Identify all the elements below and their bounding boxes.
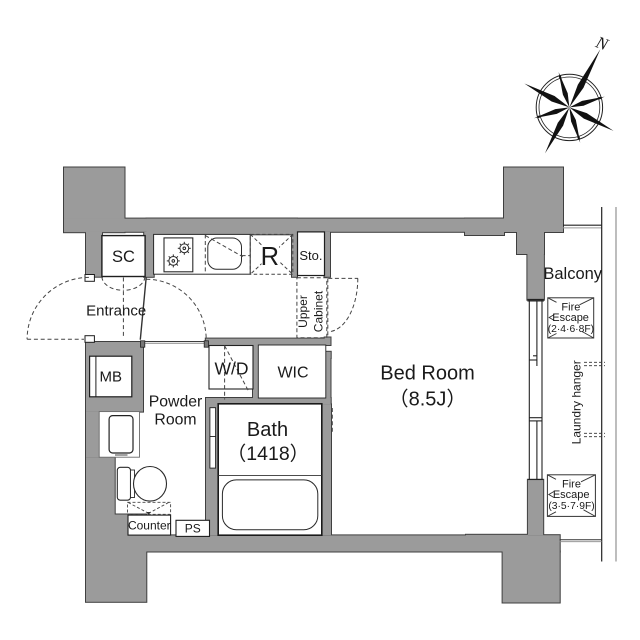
svg-text:Laundry hanger: Laundry hanger [569,360,583,444]
svg-text:Sto.: Sto. [299,248,322,263]
svg-text:W/D: W/D [214,358,248,378]
svg-text:(3·5·7·9F): (3·5·7·9F) [548,501,594,512]
svg-text:SC: SC [112,248,135,266]
svg-text:Cabinet: Cabinet [312,290,326,332]
svg-text:Powder: Powder [149,394,203,411]
svg-text:Room: Room [154,411,196,428]
svg-text:Bed Room: Bed Room [380,363,475,385]
svg-text:Counter: Counter [128,518,171,532]
svg-text:(2·4·6·8F): (2·4·6·8F) [548,324,594,335]
svg-text:PS: PS [185,521,201,535]
svg-text:Escape: Escape [553,489,590,501]
svg-text:Entrance: Entrance [86,302,146,319]
svg-text:R: R [261,243,279,271]
svg-text:WIC: WIC [277,364,308,381]
svg-text:Bath: Bath [247,419,288,441]
svg-text:Escape: Escape [552,312,589,324]
svg-text:（1418）: （1418） [227,443,309,465]
svg-text:MB: MB [100,368,123,385]
svg-text:（8.5J）: （8.5J） [389,388,467,411]
svg-text:Balcony: Balcony [543,265,602,283]
svg-text:Upper: Upper [296,295,310,328]
